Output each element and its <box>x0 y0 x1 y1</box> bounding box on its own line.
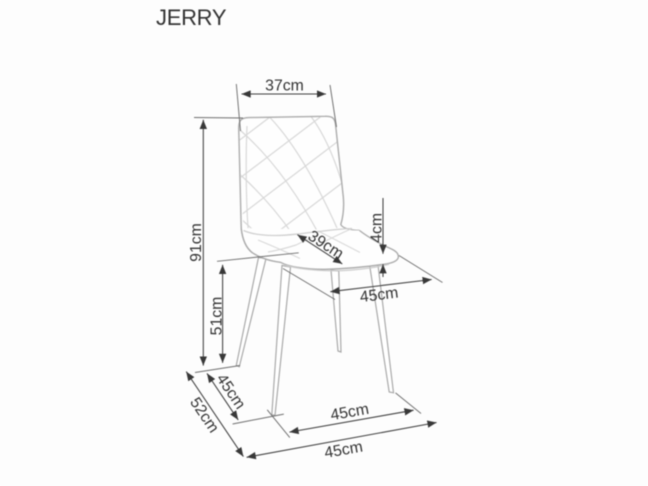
svg-text:JERRY: JERRY <box>156 5 227 30</box>
svg-text:91cm: 91cm <box>188 223 205 262</box>
svg-text:4cm: 4cm <box>369 213 386 243</box>
svg-text:37cm: 37cm <box>265 78 304 95</box>
svg-text:51cm: 51cm <box>209 297 226 336</box>
